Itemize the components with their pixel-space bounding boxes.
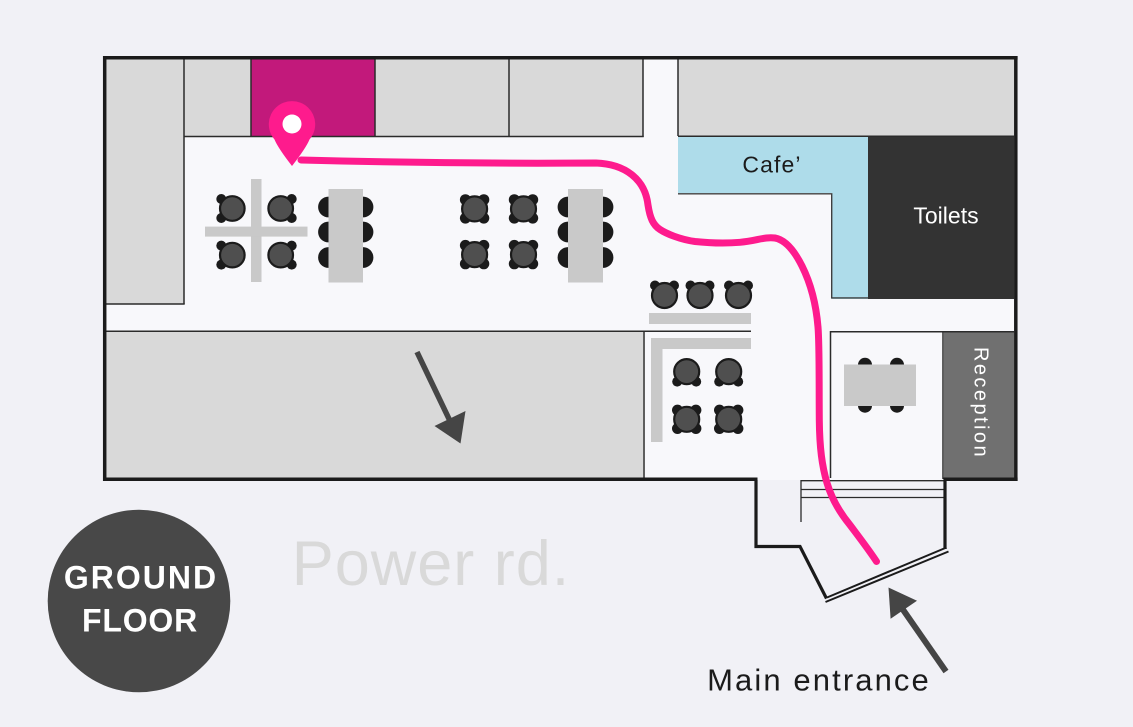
svg-text:Main entrance: Main entrance bbox=[707, 663, 931, 698]
svg-text:Cafe’: Cafe’ bbox=[742, 152, 801, 178]
svg-text:Reception: Reception bbox=[970, 347, 992, 459]
svg-text:Toilets: Toilets bbox=[913, 203, 978, 229]
svg-text:Power rd.: Power rd. bbox=[292, 529, 571, 599]
svg-text:FLOOR: FLOOR bbox=[82, 603, 198, 639]
svg-text:GROUND: GROUND bbox=[64, 559, 218, 595]
